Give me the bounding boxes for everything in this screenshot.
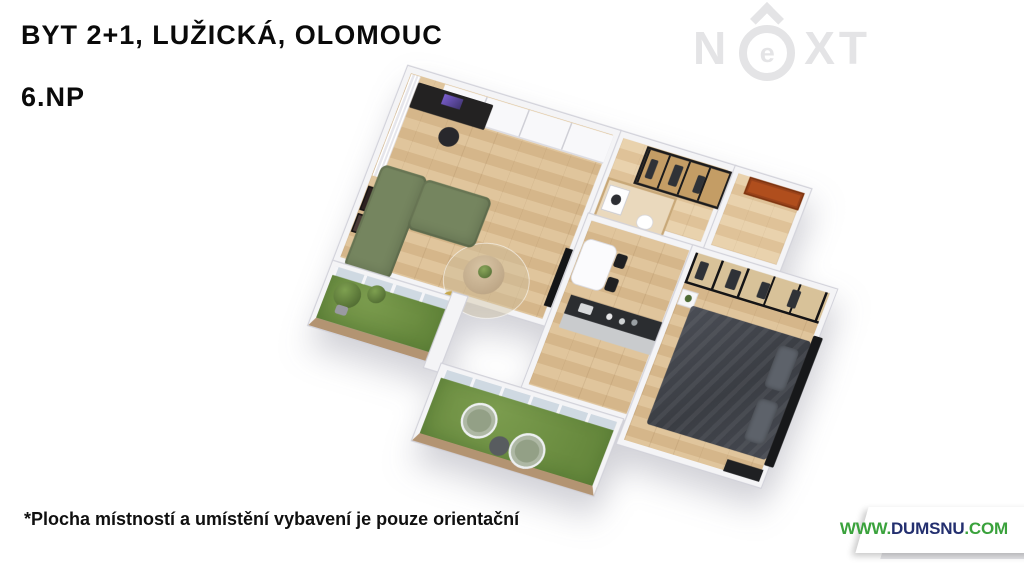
url-www: WWW. [840, 519, 891, 538]
logo-caret-up-icon [750, 2, 784, 36]
entrance-door-orange [743, 177, 804, 211]
website-url: WWW.DUMSNU.COM [840, 519, 1008, 539]
counter-items-icon [605, 313, 613, 321]
url-name: DUMSNU [891, 519, 964, 538]
website-badge: WWW.DUMSNU.COM [854, 501, 1024, 563]
logo-circle-icon: e [739, 25, 795, 81]
logo-letters-xt: XT [804, 21, 871, 75]
curtains [372, 74, 420, 178]
sink-icon [578, 303, 594, 316]
next-logo-watermark: N e XT [693, 22, 871, 74]
double-bed [646, 305, 811, 460]
office-chair [435, 125, 462, 150]
kitchen-counter-top [564, 295, 663, 342]
page-title: BYT 2+1, LUŽICKÁ, OLOMOUC [21, 20, 443, 51]
hanging-clothes-icon [694, 261, 709, 281]
table-plant-icon [476, 263, 494, 279]
logo-letter-n: N [693, 21, 730, 75]
kitchen-island [559, 295, 664, 356]
hanging-clothes-icon [644, 159, 658, 180]
washing-machine-door-icon [609, 193, 622, 206]
url-tld: .COM [964, 519, 1008, 538]
floor-plan-3d [267, 66, 869, 573]
hanging-clothes-icon [786, 289, 801, 309]
dresser [723, 459, 764, 482]
logo-letter-e: e [760, 40, 775, 67]
hanging-clothes-icon [724, 269, 741, 291]
hanging-clothes-icon [692, 175, 706, 194]
wicker-chair [503, 429, 551, 474]
plant-icon [684, 294, 693, 303]
disclaimer-text: *Plocha místností a umístění vybavení je… [24, 509, 519, 530]
hanging-clothes-icon [667, 164, 683, 187]
floor-label: 6.NP [21, 82, 85, 113]
hanging-clothes-icon [756, 281, 771, 299]
monitor-icon [441, 94, 464, 110]
washing-machine [601, 184, 631, 215]
